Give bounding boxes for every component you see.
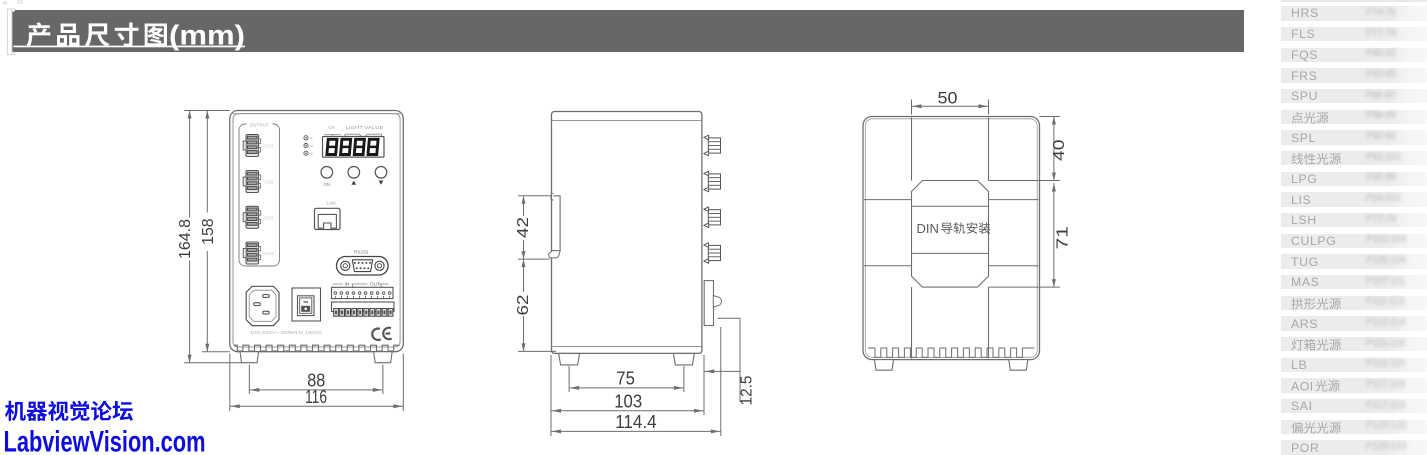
svg-text:42: 42 [515,217,532,238]
svg-text:103: 103 [614,392,642,412]
svg-text:CH2: CH2 [265,180,274,185]
svg-text:40: 40 [1051,139,1068,161]
svg-text:62: 62 [515,294,532,315]
svg-text:LabviewVision.com: LabviewVision.com [4,426,206,454]
svg-text:CH1: CH1 [265,144,274,149]
svg-text:100-240V~ 50/60Hz 160VA: 100-240V~ 50/60Hz 160VA [250,330,323,336]
svg-text:114.4: 114.4 [615,412,656,432]
svg-text:50: 50 [938,89,958,108]
svg-text:ON: ON [323,182,330,187]
svg-text:CH3: CH3 [265,215,274,220]
svg-text:OUTPUT: OUTPUT [250,122,269,127]
svg-text:R: R [310,137,313,141]
svg-text:AOI: AOI [1291,380,1314,394]
svg-text:G: G [310,152,313,156]
svg-text:CH4: CH4 [265,251,274,256]
svg-text:CH: CH [328,125,334,130]
svg-text:164.8: 164.8 [177,219,194,259]
svg-text:LIGHT VALUE: LIGHT VALUE [346,125,384,130]
svg-text:LAN: LAN [327,200,336,205]
svg-text:158: 158 [200,218,217,245]
svg-text:IN: IN [345,282,350,288]
svg-text:75: 75 [616,368,635,388]
svg-text:12.5: 12.5 [739,375,756,405]
svg-text:DIN: DIN [917,221,939,236]
svg-text:OUT: OUT [370,282,380,288]
svg-text:RS232: RS232 [354,249,369,255]
svg-text:116: 116 [305,387,327,407]
svg-text:M: M [310,144,313,148]
svg-text:71: 71 [1054,226,1071,250]
